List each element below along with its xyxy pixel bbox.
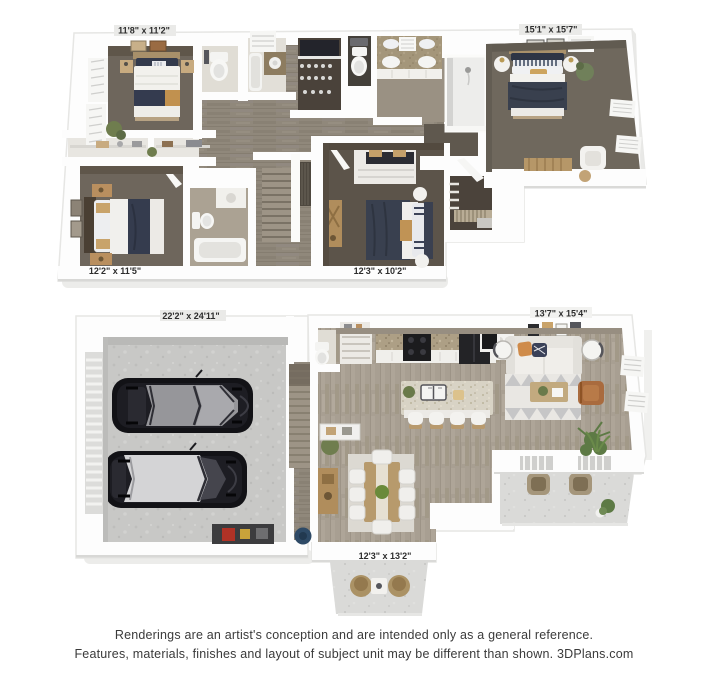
svg-text:13'7" x 15'4": 13'7" x 15'4"	[535, 309, 588, 319]
svg-text:22'2" x 24'11": 22'2" x 24'11"	[162, 311, 219, 321]
svg-text:12'3" x 10'2": 12'3" x 10'2"	[354, 266, 407, 276]
svg-text:Renderings are an artist's con: Renderings are an artist's conception an…	[115, 628, 593, 642]
svg-text:15'1" x 15'7": 15'1" x 15'7"	[525, 25, 578, 35]
svg-text:12'2" x 11'5": 12'2" x 11'5"	[89, 266, 141, 276]
svg-text:Features, materials, finishes: Features, materials, finishes and layout…	[74, 647, 633, 661]
svg-text:12'3" x 13'2": 12'3" x 13'2"	[359, 551, 412, 561]
svg-text:11'8" x 11'2": 11'8" x 11'2"	[118, 26, 170, 36]
